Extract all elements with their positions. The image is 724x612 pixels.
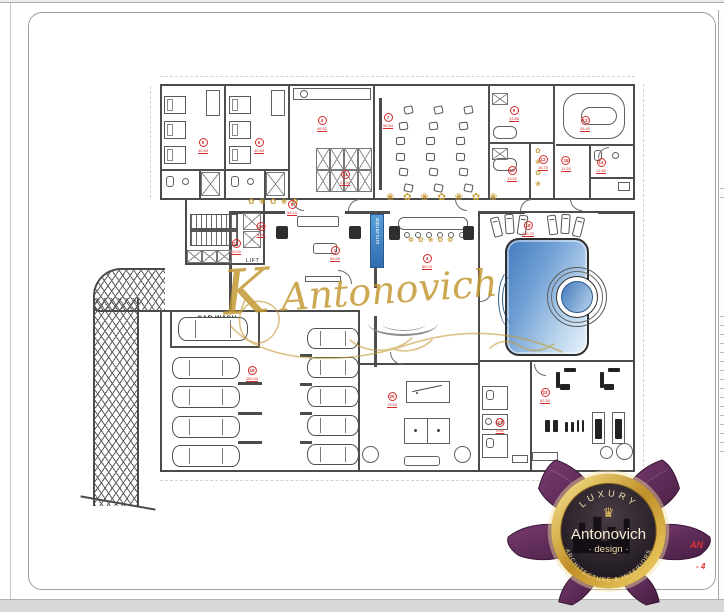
- screenshot-root: { "colors":{"wall":"#4b4b4b","accent_red…: [0, 0, 724, 612]
- title-block-line: [720, 406, 724, 407]
- room-marker: 758.64: [383, 113, 393, 129]
- room-number: 4: [317, 116, 326, 125]
- kitchen-sink: [300, 90, 308, 98]
- logo-subtitle: · design ·: [588, 544, 628, 555]
- sink: [612, 152, 619, 159]
- car: [172, 386, 240, 408]
- room-marker: 2262.30: [540, 388, 550, 404]
- wall-partition: [529, 144, 531, 198]
- title-block-line: [720, 316, 724, 317]
- room-marker: 640.84: [254, 138, 264, 154]
- hatched-box: [316, 170, 330, 192]
- room-area: 12.60: [596, 168, 606, 175]
- room-area: 9.80: [496, 428, 505, 435]
- bed: [164, 96, 186, 114]
- room-number: 8: [287, 200, 296, 209]
- crown-icon: ♛: [603, 505, 615, 520]
- room-area: 35.40: [580, 126, 590, 133]
- title-block-line: [720, 379, 724, 380]
- room-number: 5: [198, 138, 207, 147]
- toilet: [486, 438, 494, 448]
- room-marker: 1511.20: [561, 156, 571, 172]
- plan-title-fragment: AN: [690, 540, 703, 550]
- wardrobe: [206, 90, 220, 116]
- game-piece: [414, 429, 417, 432]
- hatched-box: [330, 148, 344, 170]
- room-number: 12: [538, 155, 547, 164]
- car: [172, 445, 240, 467]
- title-block-line: [720, 388, 724, 389]
- gym-machine: [608, 368, 620, 372]
- title-block-line: [720, 433, 724, 434]
- plan-number-fragment: - 4: [696, 562, 705, 571]
- game-piece: [437, 429, 440, 432]
- swivel-chair: [362, 446, 379, 463]
- massage-table: [493, 126, 517, 139]
- cinema-seat: [429, 121, 439, 130]
- title-block-line: [720, 442, 724, 443]
- room-number: 7: [383, 113, 392, 122]
- car: [307, 386, 359, 407]
- gym-machine: [604, 384, 614, 390]
- room-marker: 446.62: [317, 116, 327, 132]
- parking-divider: [238, 441, 262, 444]
- room-number: 14: [596, 158, 605, 167]
- wall-partition: [590, 177, 634, 179]
- room-area: 13.52: [507, 176, 517, 183]
- sofa: [404, 456, 440, 466]
- cinema-seat: [399, 121, 409, 130]
- wardrobe: [271, 90, 285, 116]
- title-block-line: [720, 424, 724, 425]
- cinema-seat: [399, 168, 409, 177]
- gym-machine: [560, 384, 570, 390]
- room-number: 13: [580, 116, 589, 125]
- driveway-ramp: [93, 298, 139, 506]
- wall-partition: [373, 86, 375, 198]
- wall-partition: [490, 142, 554, 144]
- room-area: 58.64: [383, 123, 393, 130]
- room-number: 15: [562, 156, 571, 165]
- cinema-seat: [396, 153, 405, 161]
- stair-flight: [190, 214, 238, 229]
- room-marker: 1121.40: [340, 170, 350, 186]
- parking-divider: [238, 412, 262, 415]
- parking-divider: [300, 441, 312, 444]
- hatched-box: [201, 172, 220, 196]
- dumbbell-rack: [582, 420, 584, 432]
- parking-divider: [300, 412, 312, 415]
- room-area: 46.62: [317, 126, 327, 133]
- room-marker: 1216.70: [538, 155, 548, 171]
- title-block-line: [720, 415, 724, 416]
- title-block-line: [720, 361, 724, 362]
- title-block-line: [720, 352, 724, 353]
- room-area: 40.84: [254, 148, 264, 155]
- room-marker: 540.84: [198, 138, 208, 154]
- watermark-flourish: [190, 230, 590, 380]
- dumbbell-rack: [565, 422, 568, 432]
- driveway-ramp-bend: [93, 268, 165, 312]
- page-top-strip: [0, 0, 724, 3]
- hatched-box: [344, 148, 358, 170]
- treadmill-belt: [595, 419, 602, 439]
- game-table-divider: [427, 418, 428, 444]
- toilet: [231, 176, 239, 187]
- bed: [164, 121, 186, 139]
- title-block-line: [720, 451, 724, 452]
- cinema-seat: [459, 121, 469, 130]
- billiard-ball: [416, 392, 418, 394]
- dumbbell-rack: [553, 420, 558, 432]
- corridor-ornament: ❀ ✿ ❀ ✿ ❀ ✿ ❀: [386, 192, 500, 203]
- room-marker: 913.86: [509, 106, 519, 122]
- sink: [182, 178, 189, 185]
- dumbbell-rack: [545, 420, 550, 432]
- dumbbell-rack: [571, 422, 574, 432]
- wall-partition: [224, 86, 226, 198]
- hatched-box: [358, 170, 372, 192]
- title-block-line: [720, 188, 724, 189]
- page-left-line: [10, 3, 11, 600]
- bed: [229, 146, 251, 164]
- hatched-box: [358, 148, 372, 170]
- room-marker: 1335.40: [580, 116, 590, 132]
- room-area: 21.40: [340, 180, 350, 187]
- hatched-box: [266, 172, 285, 196]
- title-block-line: [720, 343, 724, 344]
- title-block-line: [720, 325, 724, 326]
- hatched-box: [492, 148, 508, 160]
- room-area: 11.20: [561, 166, 571, 173]
- car: [172, 416, 240, 438]
- hatched-box: [316, 148, 330, 170]
- title-block-line: [720, 370, 724, 371]
- parking-divider: [300, 383, 312, 386]
- car: [307, 444, 359, 465]
- title-block-line: [720, 334, 724, 335]
- parking-divider: [238, 382, 262, 385]
- cinema-seat: [426, 153, 435, 161]
- room-number: 9: [509, 106, 518, 115]
- car: [307, 415, 359, 436]
- dimension-line: [160, 76, 635, 77]
- room-number: 18: [523, 221, 532, 230]
- title-block-line: [720, 197, 724, 198]
- room-number: 11: [340, 170, 349, 179]
- hatched-box: [492, 93, 508, 105]
- cabinet: [618, 182, 630, 191]
- toilet: [166, 176, 174, 187]
- wall-partition: [589, 146, 591, 199]
- room-marker: 219.80: [496, 418, 505, 434]
- swivel-chair: [454, 446, 471, 463]
- cinema-seat: [429, 168, 439, 177]
- sink: [247, 178, 254, 185]
- toilet: [486, 390, 494, 400]
- sink: [485, 418, 492, 425]
- room-number: 21: [496, 418, 505, 427]
- cinema-screen: [379, 98, 382, 190]
- room-number: 20: [387, 392, 396, 401]
- title-block-line: [720, 397, 724, 398]
- wall-partition: [162, 169, 288, 171]
- treadmill-belt: [615, 419, 622, 439]
- cinema-seat: [456, 153, 465, 161]
- wall-partition: [556, 144, 634, 146]
- room-area: 13.86: [509, 116, 519, 123]
- wall-partition: [288, 86, 290, 198]
- dimension-line: [150, 86, 151, 198]
- bar-counter: [398, 217, 468, 230]
- room-marker: 1013.52: [507, 166, 517, 182]
- antonovich-design-logo: LUXURY ♛ Antonovich · design · ARCHITECT…: [500, 458, 718, 610]
- dumbbell-rack: [577, 420, 579, 432]
- room-marker: 1412.60: [596, 158, 606, 174]
- room-area: 62.30: [540, 398, 550, 405]
- room-area: 58.10: [287, 210, 297, 217]
- room-area: 76.50: [387, 402, 397, 409]
- room-area: 40.84: [198, 148, 208, 155]
- room-area: 16.70: [538, 165, 548, 172]
- bed: [164, 146, 186, 164]
- adjacent-sheet-sliver: [718, 10, 724, 599]
- room-number: 10: [507, 166, 516, 175]
- cinema-seat: [396, 137, 405, 145]
- bed: [229, 121, 251, 139]
- cinema-seat: [456, 137, 465, 145]
- room-marker: 858.10: [287, 200, 297, 216]
- room-marker: 2076.50: [387, 392, 397, 408]
- cinema-seat: [426, 137, 435, 145]
- dimension-line: [643, 84, 644, 472]
- logo-name: Antonovich: [571, 526, 646, 543]
- cinema-seat: [459, 168, 469, 177]
- room-number: 6: [254, 138, 263, 147]
- sofa: [297, 216, 339, 227]
- bed: [229, 96, 251, 114]
- room-number: 22: [540, 388, 549, 397]
